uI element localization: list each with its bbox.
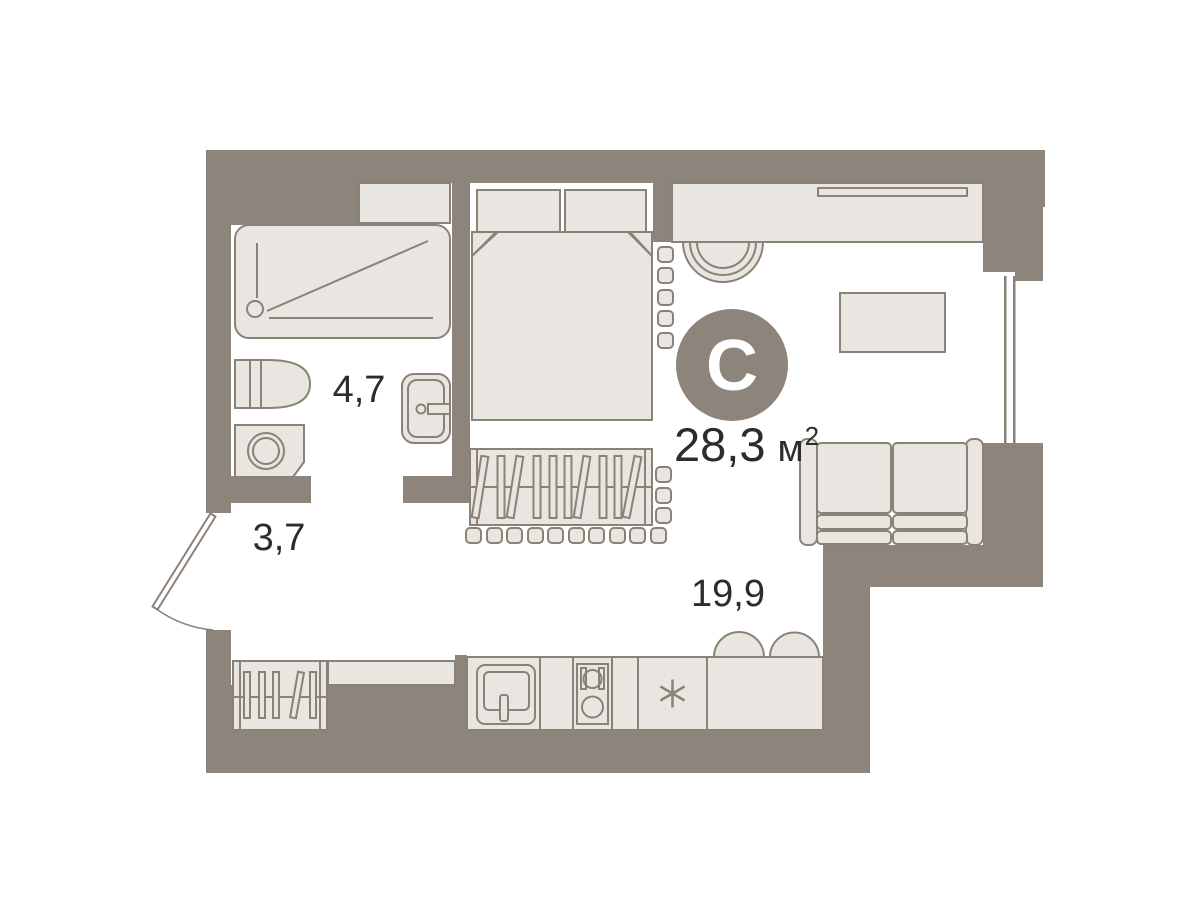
shelf-box: [630, 528, 645, 543]
wall-kitchen-stub: [455, 655, 467, 773]
hanger-bar: [273, 672, 279, 718]
desk-chair: [683, 242, 763, 282]
room-label-living: 19,9: [691, 573, 765, 615]
pillow: [477, 190, 560, 232]
hanger-bar: [259, 672, 265, 718]
shelf-box: [487, 528, 502, 543]
sofa-seat-slat: [893, 531, 967, 544]
total-area-label: 28,3м2: [674, 418, 819, 471]
bar-stool: [770, 633, 819, 657]
sofa-seat-slat: [893, 515, 967, 529]
wall-left-upper: [206, 150, 231, 513]
shelf-box: [658, 268, 673, 283]
window: [1004, 276, 1016, 444]
washing-machine: [235, 425, 304, 477]
mattress: [472, 232, 652, 420]
sofa: [800, 439, 983, 545]
pillow: [565, 190, 646, 232]
window-pane-line: [1004, 276, 1007, 444]
entry-door: [153, 513, 216, 630]
shelf-box: [651, 528, 666, 543]
total-area-value: 28,3: [674, 418, 765, 471]
coffee-table: [840, 293, 945, 352]
badge-letter: С: [706, 326, 758, 406]
shelf-box: [658, 311, 673, 326]
shelf-box: [658, 247, 673, 262]
shelf-box: [656, 488, 671, 503]
shelf-box: [548, 528, 563, 543]
shelf-box: [466, 528, 481, 543]
wall-right-mid: [983, 443, 1043, 587]
shelf-box: [589, 528, 604, 543]
shelf-box: [610, 528, 625, 543]
shelf-box: [658, 290, 673, 305]
hanger-bar: [310, 672, 316, 718]
sofa-seat-slat: [817, 515, 891, 529]
sofa-armrest: [966, 439, 983, 545]
hallway-cabinet: [328, 661, 455, 685]
shelf-box: [658, 333, 673, 348]
sofa-back-cushion: [893, 443, 967, 513]
bar-stool: [714, 632, 764, 657]
total-area-superscript: 2: [805, 421, 819, 451]
entry-door-swing-arc: [155, 608, 213, 630]
hanger-bar: [244, 672, 250, 718]
shelf-box: [656, 467, 671, 482]
room-label-hallway: 3,7: [253, 517, 306, 559]
bed: [472, 190, 652, 420]
wall-bathroom-south-right: [403, 476, 470, 503]
toilet: [235, 360, 310, 408]
room-label-bathroom: 4,7: [333, 369, 386, 411]
shelf-box: [656, 508, 671, 523]
hanger-bars: [472, 456, 642, 518]
wall-bathroom-east: [452, 150, 470, 503]
wall-right-upper-step: [1015, 272, 1043, 281]
sofa-back-cushion: [817, 443, 891, 513]
hallway-rack: [233, 661, 327, 730]
sink-tap: [500, 695, 508, 721]
bathroom: [235, 183, 450, 477]
washbasin: [402, 374, 450, 443]
area-badge: С: [676, 309, 788, 421]
window-pane-line: [1013, 276, 1016, 444]
bathtub-niche: [359, 183, 450, 223]
wall-right-upper-block: [983, 183, 1043, 272]
wall-bathroom-south-left: [206, 476, 311, 503]
wall-shelf-column: [658, 247, 673, 348]
total-area-unit: м: [777, 428, 803, 470]
kitchen: [467, 632, 823, 730]
shelf-box: [569, 528, 584, 543]
shelf-box: [507, 528, 522, 543]
tv: [818, 188, 967, 196]
floor-plan: С 4,7 3,7 19,9 28,3м2: [0, 0, 1200, 924]
wall-partition-stub: [653, 181, 672, 242]
wardrobe: [470, 449, 652, 525]
entry-door-leaf: [153, 513, 216, 609]
shelf-box: [528, 528, 543, 543]
wall-kitchen-bottom: [467, 730, 870, 773]
bathtub: [235, 225, 450, 338]
sofa-seat-slat: [817, 531, 891, 544]
floor-plan-canvas: С 4,7 3,7 19,9 28,3м2: [0, 0, 1200, 924]
kitchen-counter: [467, 657, 823, 730]
